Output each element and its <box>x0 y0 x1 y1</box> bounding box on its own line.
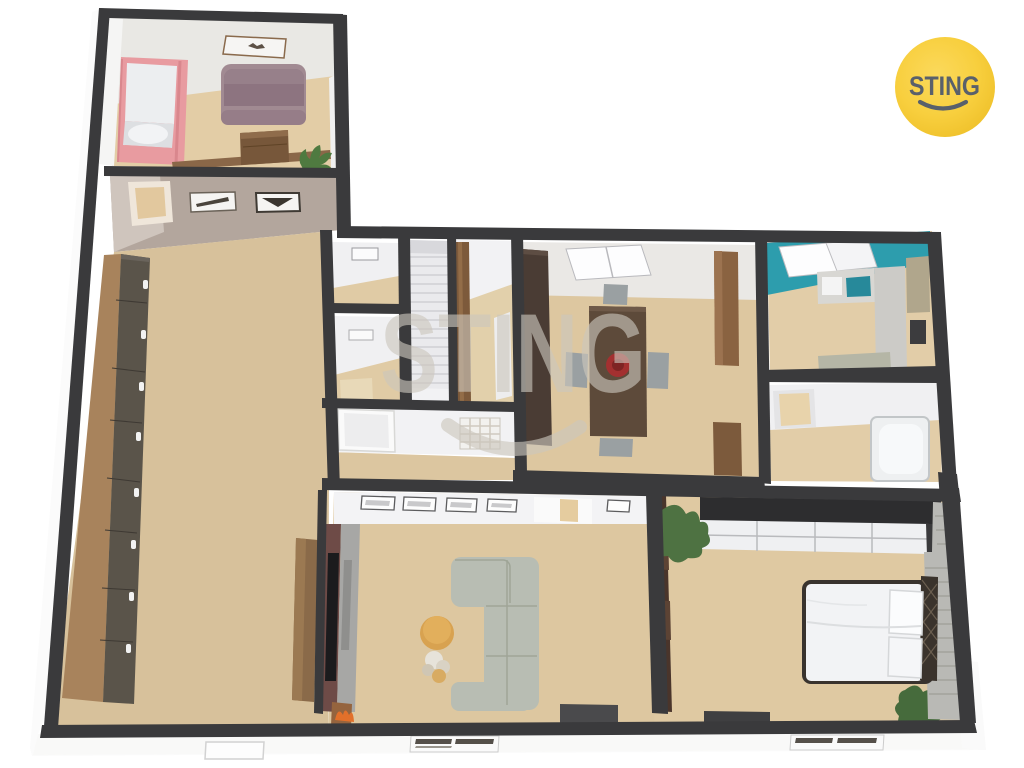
svg-text:STING: STING <box>909 71 980 101</box>
svg-text:STING: STING <box>380 291 646 416</box>
